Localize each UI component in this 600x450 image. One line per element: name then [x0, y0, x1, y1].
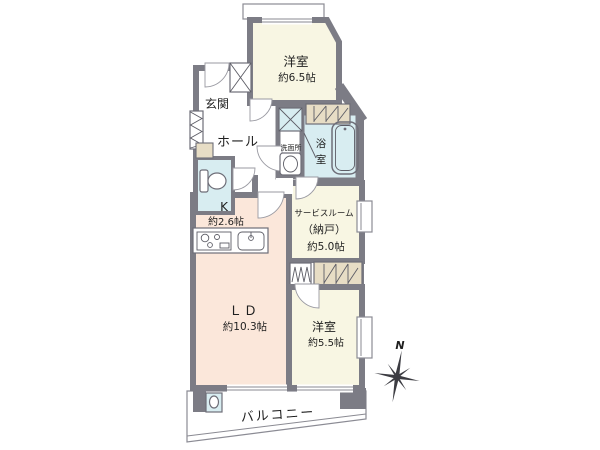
floorplan-canvas: N 洋室 約6.5帖 玄関 ホール 洗面所 浴 室 K 約2.6帖 サービスルー…	[0, 0, 600, 450]
bedroom-top-size: 約6.5帖	[278, 71, 316, 84]
entrance-label: 玄関	[205, 96, 229, 111]
bath-label-2: 室	[316, 153, 327, 166]
bay-window-bedroom	[357, 317, 372, 358]
service-room-label-2: （納戸）	[302, 223, 346, 236]
compass-rose-icon	[370, 346, 424, 406]
kitchen-label: K	[220, 200, 229, 214]
window-top	[262, 17, 312, 25]
storage-box	[196, 143, 213, 158]
kitchen-size: 約2.6帖	[208, 215, 244, 228]
window-living	[227, 385, 287, 393]
hall-label: ホール	[217, 135, 259, 150]
floorplan-page: N 洋室 約6.5帖 玄関 ホール 洗面所 浴 室 K 約2.6帖 サービスルー…	[0, 0, 600, 450]
bedroom-lower-size: 約5.5帖	[308, 336, 344, 349]
compass-north-label: N	[395, 339, 404, 352]
service-room-label: サービスルーム	[294, 209, 353, 219]
bathtub-faucet	[344, 128, 347, 131]
living-dining-size: 約10.3帖	[223, 320, 268, 333]
closet-lower-box	[314, 262, 362, 286]
wall-block-left	[193, 388, 206, 412]
bedroom-top-label: 洋室	[283, 54, 308, 69]
bay-window-service	[357, 201, 372, 232]
toilet-icon	[200, 170, 208, 192]
toilet-bowl-icon	[208, 173, 226, 189]
closet-upper	[306, 104, 350, 124]
window-bedroom-lower	[297, 385, 353, 393]
service-room-size: 約5.0帖	[307, 240, 345, 253]
washroom-label: 洗面所	[281, 143, 302, 152]
bedroom-lower-label: 洋室	[312, 319, 336, 334]
living-dining-label: ＬＤ	[229, 304, 259, 319]
slop-sink-bowl	[210, 396, 219, 408]
bath-label-1: 浴	[316, 138, 327, 150]
